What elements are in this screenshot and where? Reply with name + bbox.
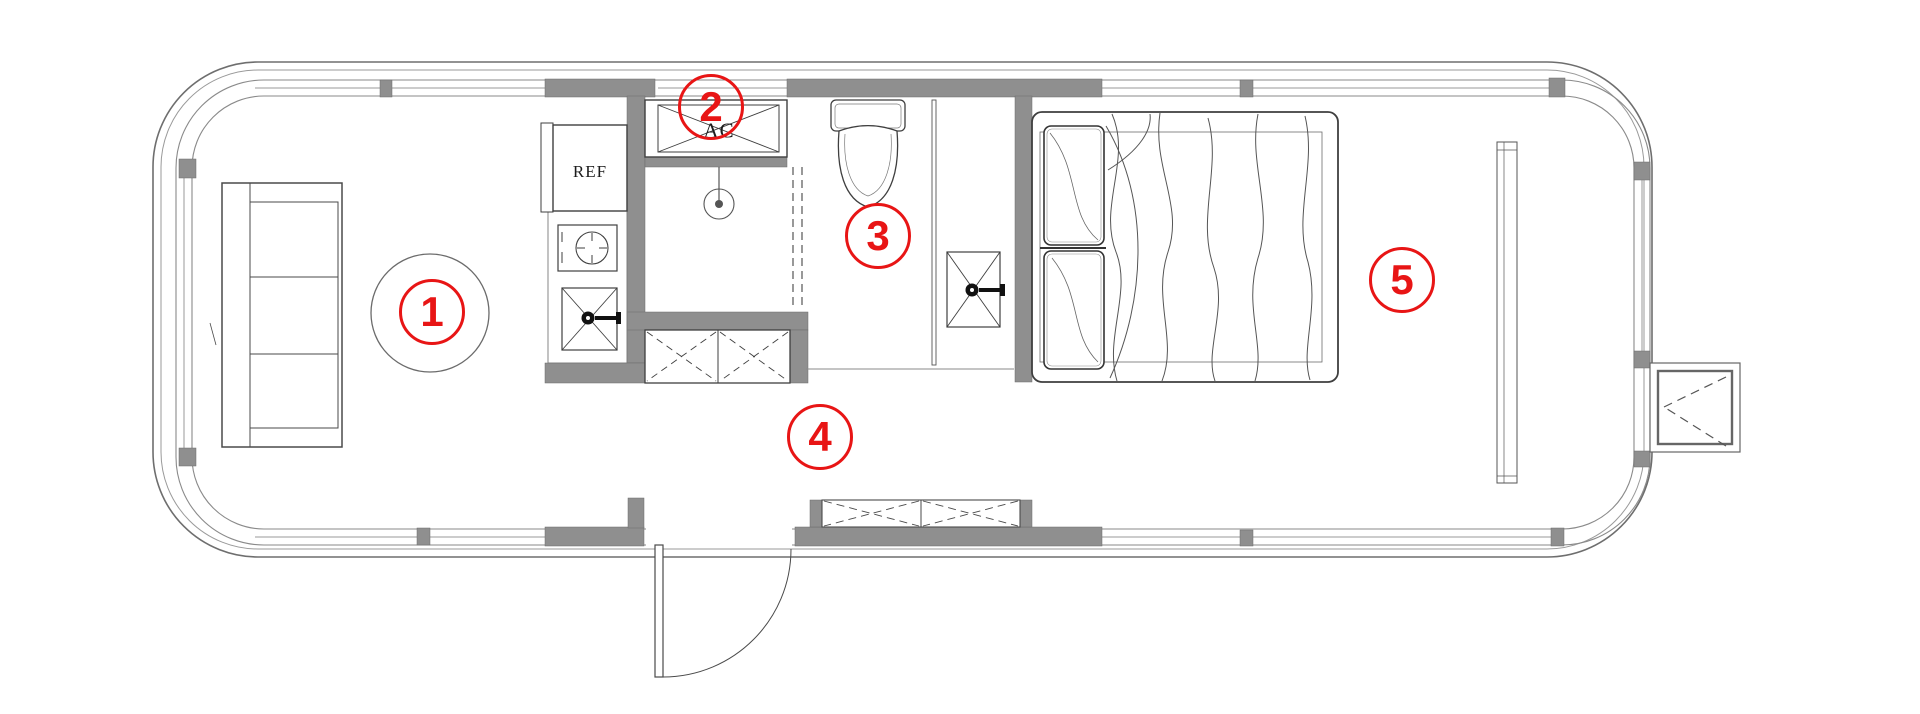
rear-rail <box>1497 142 1517 483</box>
refrigerator <box>541 123 627 212</box>
entry-step-box <box>1650 363 1740 452</box>
shower-head <box>704 167 734 219</box>
zone-marker-3: 3 <box>845 203 911 269</box>
zone-marker-2: 2 <box>678 74 744 140</box>
zone-marker-1: 1 <box>399 279 465 345</box>
sofa <box>210 183 342 447</box>
floor-plan-canvas: REF AC 1 2 3 4 5 <box>0 0 1920 714</box>
toilet <box>831 100 905 207</box>
overhead-cabinet <box>822 500 1020 527</box>
vanity-counter <box>932 100 936 365</box>
shower-screen <box>793 167 802 310</box>
door-opening-gap <box>646 518 792 547</box>
wardrobe-cabinet <box>645 330 790 383</box>
pillows <box>1040 126 1106 369</box>
trailer-shell <box>153 62 1652 557</box>
kitchen-sink <box>562 288 621 350</box>
entry-door <box>655 545 791 677</box>
stove <box>558 225 617 271</box>
zone-marker-5: 5 <box>1369 247 1435 313</box>
floor-plan-drawing <box>0 0 1920 714</box>
zone-marker-4: 4 <box>787 404 853 470</box>
vanity-sink <box>947 252 1005 327</box>
